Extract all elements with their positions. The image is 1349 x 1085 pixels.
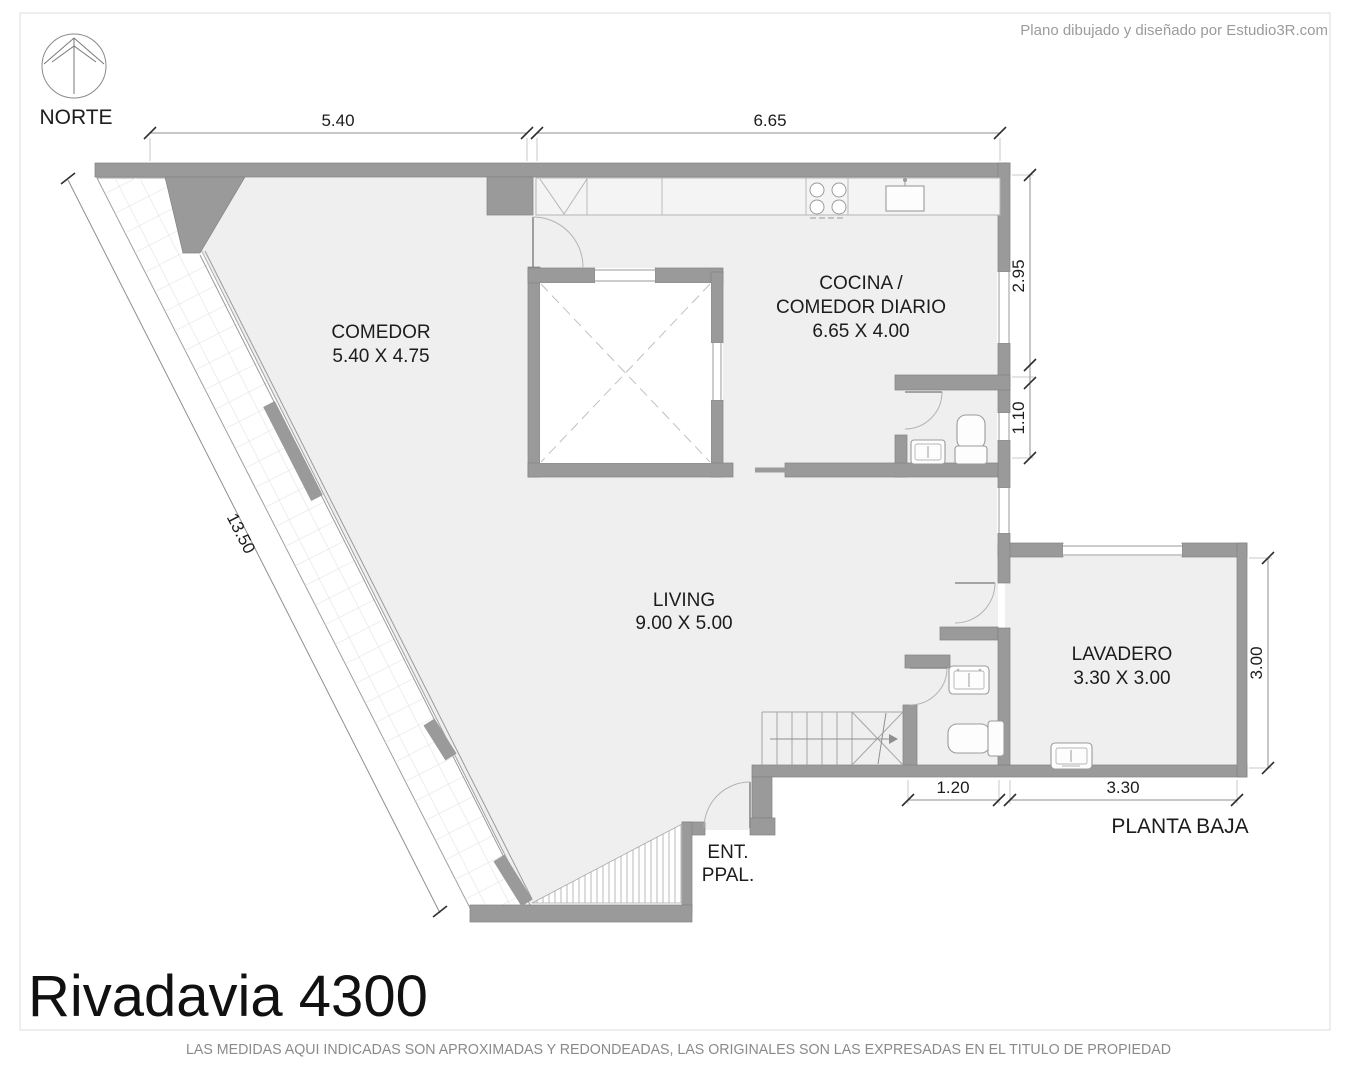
shaft-top-wall-a xyxy=(528,268,595,283)
comedor-label: COMEDOR xyxy=(331,322,430,343)
toilette-left-wall xyxy=(903,705,917,767)
lavadero-size: 3.30 X 3.00 xyxy=(1073,668,1170,689)
dim-bottom-bath: 1.20 xyxy=(936,778,969,797)
light-shaft xyxy=(540,283,711,463)
dim-top-comedor: 5.40 xyxy=(321,111,354,130)
living-size: 9.00 X 5.00 xyxy=(635,613,732,634)
north-arrow-icon xyxy=(42,34,106,98)
dim-right-bath: 1.10 xyxy=(1009,401,1028,434)
floor-plan-drawing: Plano dibujado y diseñado por Estudio3R.… xyxy=(0,0,1349,1080)
bath1-top-wall xyxy=(895,375,1010,390)
lavadero-right-wall xyxy=(1237,543,1247,777)
cocina-label-line2: COMEDOR DIARIO xyxy=(776,297,946,318)
shaft-left-wall xyxy=(528,267,540,477)
toilette2-toilet-icon xyxy=(948,721,1004,756)
north-wall xyxy=(95,163,1010,177)
shaft-right-wall-a xyxy=(711,272,723,343)
comedor-size: 5.40 X 4.75 xyxy=(332,346,429,367)
east-wall-lower xyxy=(998,440,1010,488)
entry-right-wall xyxy=(752,777,772,818)
cocina-size: 6.65 X 4.00 xyxy=(812,321,909,342)
shaft-bottom-wall xyxy=(528,463,733,477)
dim-bottom-lavadero: 3.30 xyxy=(1106,778,1139,797)
north-label: NORTE xyxy=(39,106,112,129)
toilette-top-wall xyxy=(905,655,950,668)
bathroom1-sink-icon xyxy=(911,440,945,464)
entrance-label-line1: ENT. xyxy=(707,842,748,863)
plan-level-label: PLANTA BAJA xyxy=(1111,815,1248,838)
entry-left-wall xyxy=(682,822,692,913)
entrance-label-line2: PPAL. xyxy=(702,865,754,886)
entry-right-stub xyxy=(750,818,775,835)
credit-text: Plano dibujado y diseñado por Estudio3R.… xyxy=(1020,22,1328,39)
shaft-window-top xyxy=(595,268,655,283)
page-title: Rivadavia 4300 xyxy=(28,964,428,1029)
lavadero-label: LAVADERO xyxy=(1072,644,1173,665)
east-window-3 xyxy=(997,488,1011,533)
kitchen-counter xyxy=(536,178,1000,218)
hall-wall xyxy=(940,627,998,640)
dim-terrace-diagonal: 13.50 xyxy=(223,510,259,557)
bathroom1-toilet-icon xyxy=(955,415,987,464)
toilette2-sink-icon xyxy=(949,666,989,694)
dim-lavadero-height: 3.00 xyxy=(1247,646,1266,679)
southwest-wall xyxy=(470,905,692,922)
lavadero-window xyxy=(1063,544,1182,556)
south-wall xyxy=(752,765,1247,777)
lavadero-left-wall-upper xyxy=(998,533,1010,583)
disclaimer-text: LAS MEDIDAS AQUI INDICADAS SON APROXIMAD… xyxy=(186,1041,1171,1058)
dim-top-cocina: 6.65 xyxy=(753,111,786,130)
floor-plan-page: Plano dibujado y diseñado por Estudio3R.… xyxy=(0,0,1349,1080)
pier-comedor-cocina xyxy=(487,177,533,215)
laundry-sink-icon xyxy=(1051,743,1092,769)
dim-right-cocina: 2.95 xyxy=(1009,259,1028,292)
living-label: LIVING xyxy=(653,590,715,611)
shaft-window-right xyxy=(711,343,723,400)
cocina-south-wall xyxy=(785,463,998,477)
cocina-label-line1: COCINA / xyxy=(819,273,903,294)
